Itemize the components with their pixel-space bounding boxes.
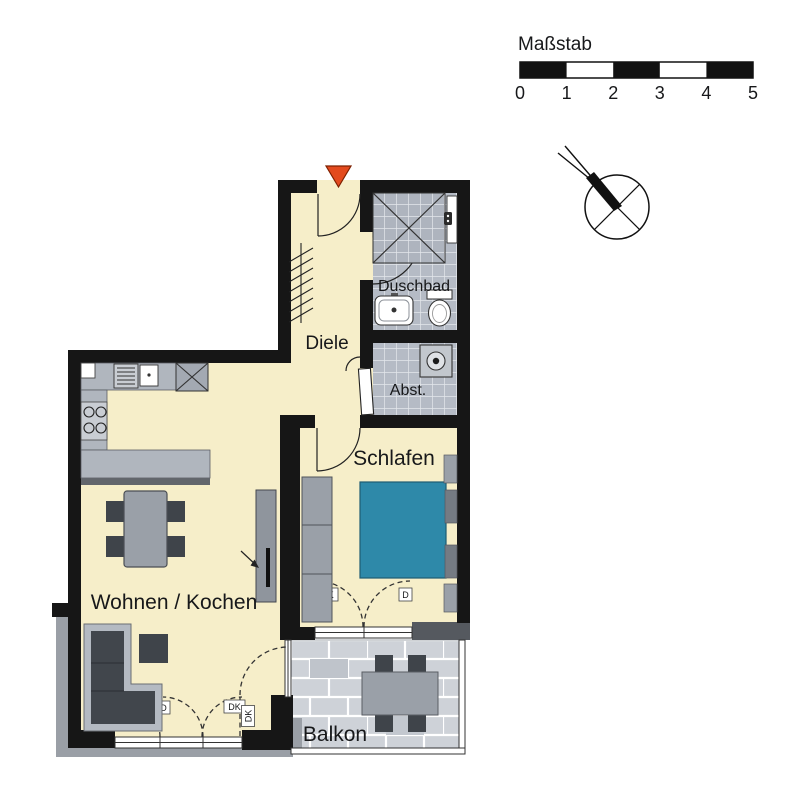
- scale-tick: 0: [515, 83, 525, 103]
- balcony-chair: [408, 655, 426, 673]
- floorplan-page: { "scale_bar": { "label": "Maßstab", "ti…: [0, 0, 800, 797]
- exterior-band-left: [56, 610, 68, 757]
- kitchen-peninsula-edge: [81, 478, 210, 485]
- floorplan-drawing: DK D DK DK DK D: [0, 0, 800, 797]
- wall: [280, 627, 315, 640]
- wall: [360, 415, 470, 428]
- bed-pillow: [445, 490, 457, 523]
- scale-bar-segment: [706, 62, 753, 78]
- schlafen-door-threshold: [315, 415, 360, 428]
- dining-chair: [106, 536, 125, 557]
- scale-bar: Maßstab 0 1 2 3 4 5: [515, 34, 758, 103]
- room-label-duschbad: Duschbad: [378, 278, 450, 295]
- wall: [68, 350, 291, 363]
- north-arrow-icon: [558, 146, 649, 239]
- dining-table: [124, 491, 167, 567]
- balcony-railing-bottom: [291, 748, 465, 754]
- shower: [373, 193, 445, 263]
- window-side-balkon: [285, 640, 291, 697]
- room-label-balkon: Balkon: [303, 723, 367, 746]
- storage-room: [420, 345, 452, 377]
- balcony-chair: [375, 714, 393, 732]
- room-label-abstellraum: Abst.: [390, 382, 426, 399]
- window-south-schlafen: [315, 627, 412, 638]
- wall: [360, 280, 373, 368]
- wall: [360, 330, 470, 343]
- scale-bar-title: Maßstab: [518, 34, 592, 55]
- wall-wohnen-schlafen: [280, 415, 300, 628]
- scale-tick: 2: [608, 83, 618, 103]
- wall: [360, 180, 470, 193]
- svg-text:DK: DK: [244, 710, 254, 723]
- paver-accent-tile: [310, 659, 348, 678]
- washing-machine: [420, 345, 452, 377]
- wall-pier: [52, 603, 81, 617]
- kitchen-corner-unit: [81, 363, 95, 378]
- scale-tick: 1: [562, 83, 572, 103]
- kitchen-tall-unit: [176, 363, 208, 391]
- door-code-d: D: [399, 588, 412, 601]
- toilet: [427, 290, 452, 326]
- wall: [360, 193, 373, 232]
- wall-corner: [271, 695, 293, 750]
- dining-chair: [106, 501, 125, 522]
- washbasin: [375, 293, 413, 325]
- scale-tick: 4: [701, 83, 711, 103]
- wardrobe: [302, 477, 332, 622]
- scale-tick: 3: [655, 83, 665, 103]
- bed: [360, 482, 446, 578]
- balcony-chair: [408, 714, 426, 732]
- dining-chair: [166, 536, 185, 557]
- window-south-wohnen: [115, 737, 242, 748]
- balcony-table: [362, 672, 438, 715]
- room-label-diele: Diele: [305, 333, 348, 354]
- room-label-wohnen-kochen: Wohnen / Kochen: [91, 591, 258, 614]
- door-code-dk-rotated: DK: [242, 706, 255, 727]
- wall: [278, 180, 291, 350]
- balcony-railing-right: [459, 640, 465, 754]
- scale-bar-ticks: 0 1 2 3 4 5: [515, 83, 758, 103]
- wall: [68, 617, 81, 745]
- exterior-stub: [293, 718, 302, 752]
- svg-text:D: D: [402, 590, 409, 600]
- nightstand: [444, 584, 457, 612]
- cooktop: [81, 402, 107, 440]
- room-label-schlafen: Schlafen: [353, 447, 435, 470]
- scale-bar-segment: [613, 62, 660, 78]
- scale-bar-segment: [520, 62, 567, 78]
- bed-pillow: [445, 545, 457, 578]
- wall: [68, 730, 115, 748]
- duschbad-door-threshold: [360, 232, 373, 280]
- tv: [266, 548, 270, 587]
- spandrel-band: [412, 622, 470, 640]
- wall: [457, 180, 470, 623]
- balcony-chair: [375, 655, 393, 673]
- shower-head-icon: [444, 212, 452, 225]
- kitchen-sink: [114, 364, 158, 388]
- svg-text:DK: DK: [228, 702, 241, 712]
- coffee-table: [139, 634, 168, 663]
- kitchen-peninsula: [81, 450, 210, 478]
- dining-chair: [166, 501, 185, 522]
- floor-junction: [280, 363, 291, 415]
- wall: [68, 350, 81, 617]
- scale-tick: 5: [748, 83, 758, 103]
- nightstand: [444, 455, 457, 483]
